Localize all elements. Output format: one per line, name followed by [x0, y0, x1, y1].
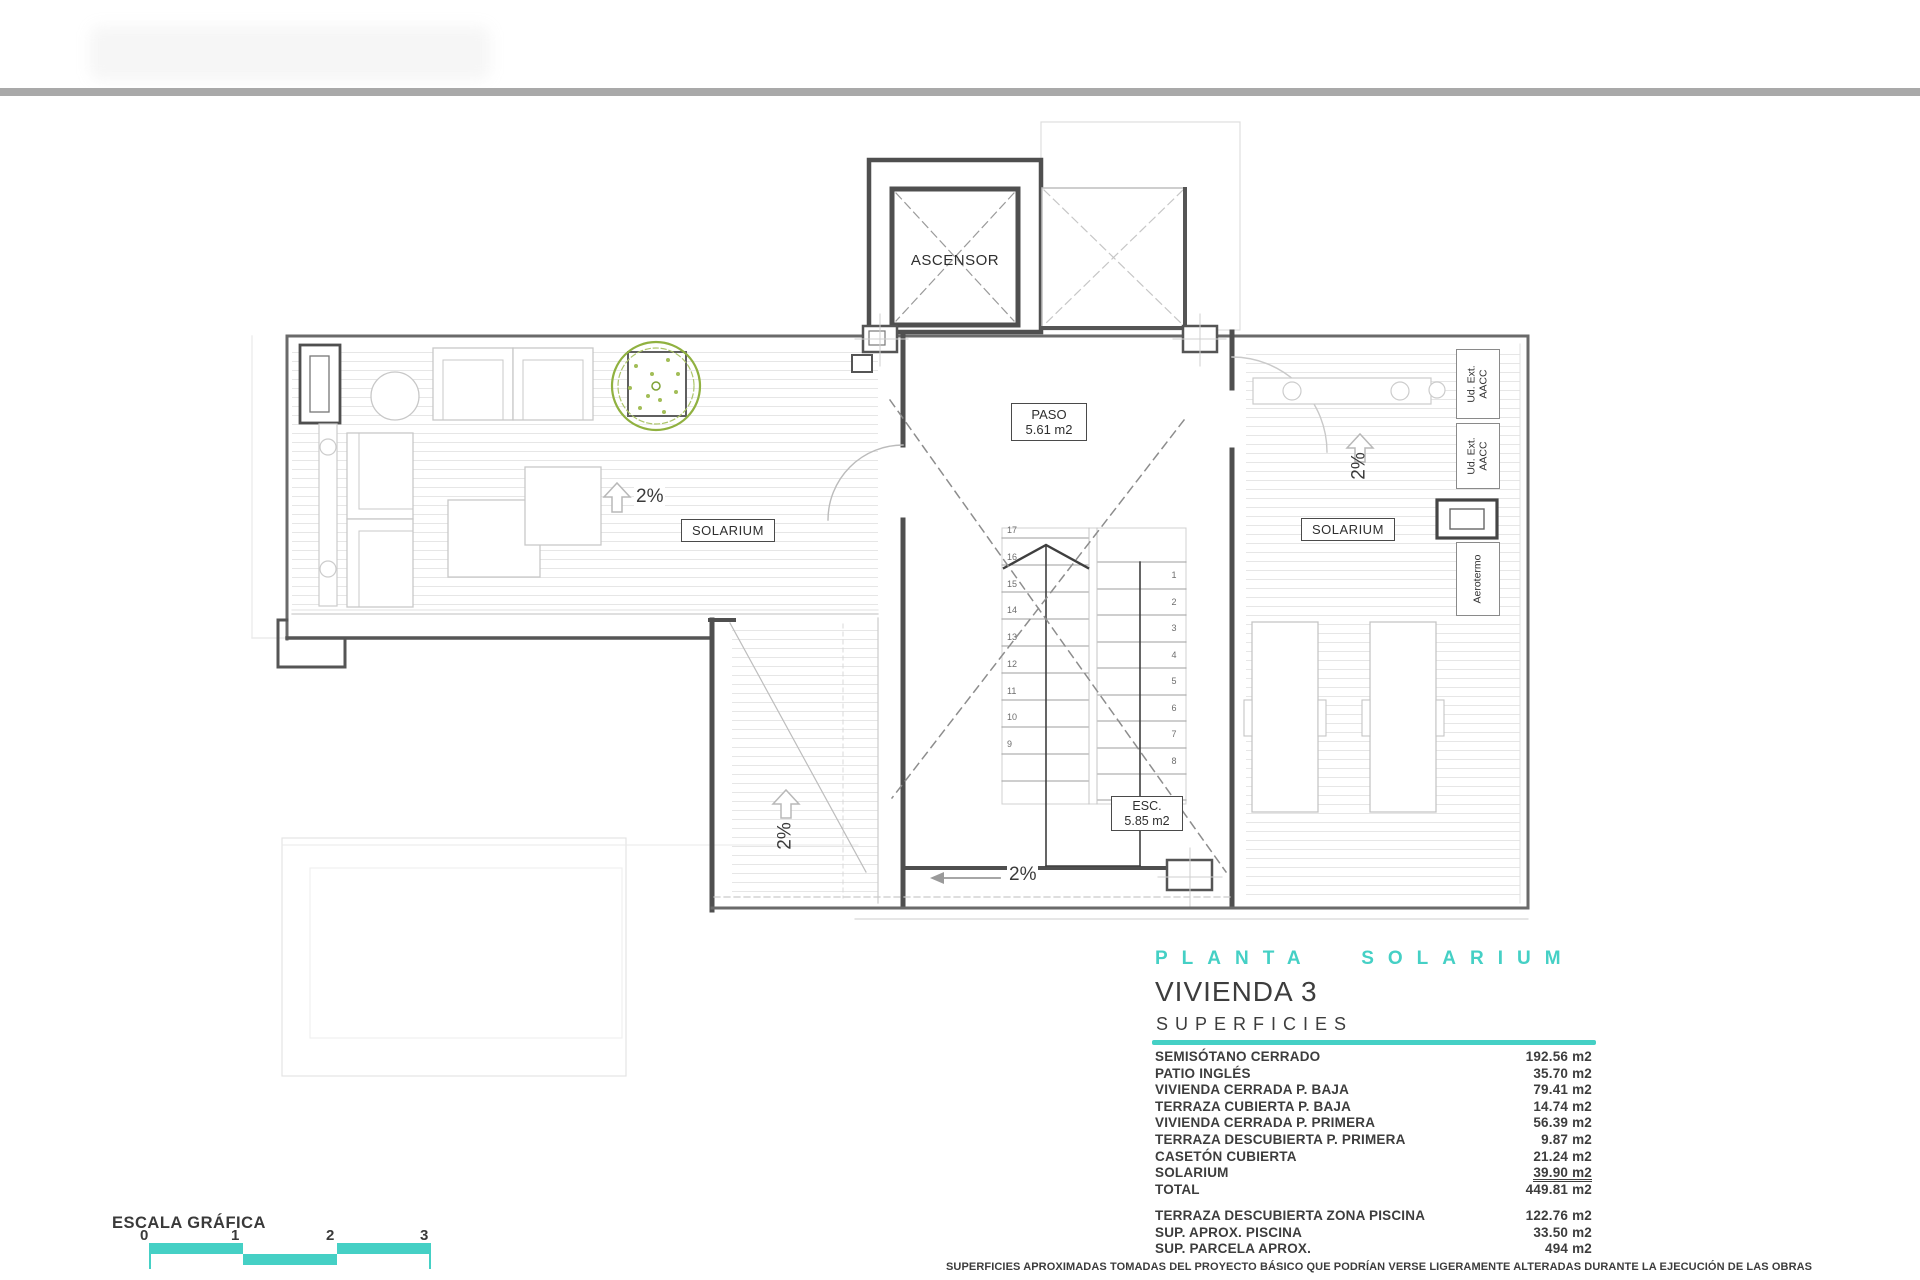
stair-number: 11: [1007, 687, 1027, 696]
ac-unit-line1: Ud. Ext.: [1466, 365, 1478, 402]
aerotermo-label: Aerotermo: [1472, 554, 1484, 603]
scale-bar-title: ESCALA GRÁFICA: [112, 1214, 266, 1233]
table-row: SUP. PARCELA APROX.494 m2: [1155, 1241, 1592, 1258]
paso-room-name: PASO: [1012, 407, 1086, 422]
table-row: VIVIENDA CERRADA P. PRIMERA56.39 m2: [1155, 1115, 1592, 1132]
unit-name-title: VIVIENDA 3: [1155, 976, 1318, 1008]
stair-number: 16: [1007, 553, 1027, 562]
footnote-disclaimer: SUPERFICIES APROXIMADAS TOMADAS DEL PROY…: [946, 1261, 1812, 1273]
areas-table: SEMISÓTANO CERRADO192.56 m2 PATIO INGLÉS…: [1155, 1049, 1592, 1198]
scale-bar-segment: [150, 1243, 243, 1254]
stair-number: 8: [1164, 757, 1184, 766]
slope-label-left: 2%: [634, 486, 665, 508]
page-canvas: ASCENSOR PASO 5.61 m2 ESC. 5.85 m2 SOLAR…: [0, 0, 1920, 1280]
equipment-unit: [1437, 500, 1497, 538]
scale-bar-end-tick: [149, 1243, 151, 1269]
surfaces-section-title: SUPERFICIES: [1156, 1014, 1353, 1035]
stair-number: 3: [1164, 624, 1184, 633]
aerotermo-box: Aerotermo: [1456, 542, 1500, 616]
stair-number: 1: [1164, 571, 1184, 580]
table-row: SEMISÓTANO CERRADO192.56 m2: [1155, 1049, 1592, 1066]
solarium-right-label: SOLARIUM: [1301, 518, 1395, 541]
scale-tick-label: 0: [140, 1227, 148, 1244]
sunbed: [1370, 622, 1436, 812]
table-row: CASETÓN CUBIERTA21.24 m2: [1155, 1149, 1592, 1166]
paso-room-label: PASO 5.61 m2: [1011, 403, 1087, 441]
table-row: TERRAZA DESCUBIERTA P. PRIMERA9.87 m2: [1155, 1132, 1592, 1149]
stair-room-name: ESC.: [1112, 799, 1182, 814]
table-row-total: TOTAL449.81 m2: [1155, 1182, 1592, 1199]
stair-number: 9: [1007, 740, 1027, 749]
round-table: [371, 372, 419, 420]
sofa: [347, 519, 413, 607]
stair-number: 4: [1164, 651, 1184, 660]
stair-number: 5: [1164, 677, 1184, 686]
scale-tick-label: 2: [326, 1227, 334, 1244]
teal-divider-rule: [1152, 1040, 1596, 1045]
low-table: [525, 467, 601, 545]
table-row: TERRAZA CUBIERTA P. BAJA14.74 m2: [1155, 1099, 1592, 1116]
slope-label-right: 2%: [1342, 450, 1378, 482]
solarium-left-label: SOLARIUM: [681, 519, 775, 542]
floor-plan-drawing: [0, 0, 1920, 1280]
scale-tick-label: 1: [231, 1227, 239, 1244]
ac-unit-line1: Ud. Ext.: [1466, 437, 1478, 474]
stair-room-area: 5.85 m2: [1112, 814, 1182, 829]
scale-bar-segment: [337, 1243, 430, 1254]
table-row: SOLARIUM39.90 m2: [1155, 1165, 1592, 1182]
elevator-label: ASCENSOR: [882, 252, 1028, 269]
stair-number: 2: [1164, 598, 1184, 607]
slope-arrow-up-icon: [604, 483, 630, 512]
stairwell-outline: [1002, 528, 1186, 804]
stair-number: 12: [1007, 660, 1027, 669]
slope-label-ramp: 2%: [768, 820, 804, 852]
slope-label-bottom: 2%: [1007, 864, 1038, 886]
sunbed: [1252, 622, 1318, 812]
stair-number: 15: [1007, 580, 1027, 589]
armchair: [513, 348, 593, 420]
table-row: VIVIENDA CERRADA P. BAJA79.41 m2: [1155, 1082, 1592, 1099]
scale-bar-segment: [243, 1254, 337, 1265]
stair-number: 13: [1007, 633, 1027, 642]
table-row: TERRAZA DESCUBIERTA ZONA PISCINA122.76 m…: [1155, 1208, 1592, 1225]
exterior-ac-unit-box: Ud. Ext. AACC: [1456, 349, 1500, 419]
scale-bar-end-tick: [429, 1243, 431, 1269]
table-row: PATIO INGLÉS35.70 m2: [1155, 1066, 1592, 1083]
door-arc: [828, 445, 903, 520]
armchair: [433, 348, 513, 420]
sofa: [347, 433, 413, 519]
stair-number: 7: [1164, 730, 1184, 739]
table-row: SUP. APROX. PISCINA33.50 m2: [1155, 1225, 1592, 1242]
paso-room-area: 5.61 m2: [1012, 422, 1086, 437]
stair-number: 6: [1164, 704, 1184, 713]
exterior-ac-unit-box: Ud. Ext. AACC: [1456, 423, 1500, 489]
chimney-vent: [300, 345, 340, 423]
stair-number: 10: [1007, 713, 1027, 722]
stair-room-label: ESC. 5.85 m2: [1111, 796, 1183, 831]
plan-name-title: PLANTA SOLARIUM: [1155, 948, 1575, 970]
stair-number: 14: [1007, 606, 1027, 615]
extra-areas-table: TERRAZA DESCUBIERTA ZONA PISCINA122.76 m…: [1155, 1208, 1592, 1258]
slope-arrow-up-icon: [773, 790, 799, 818]
ac-unit-line2: AACC: [1478, 441, 1490, 470]
scale-tick-label: 3: [420, 1227, 428, 1244]
stair-number: 17: [1007, 526, 1027, 535]
tree-planter: [628, 352, 686, 416]
ac-unit-line2: AACC: [1478, 369, 1490, 398]
